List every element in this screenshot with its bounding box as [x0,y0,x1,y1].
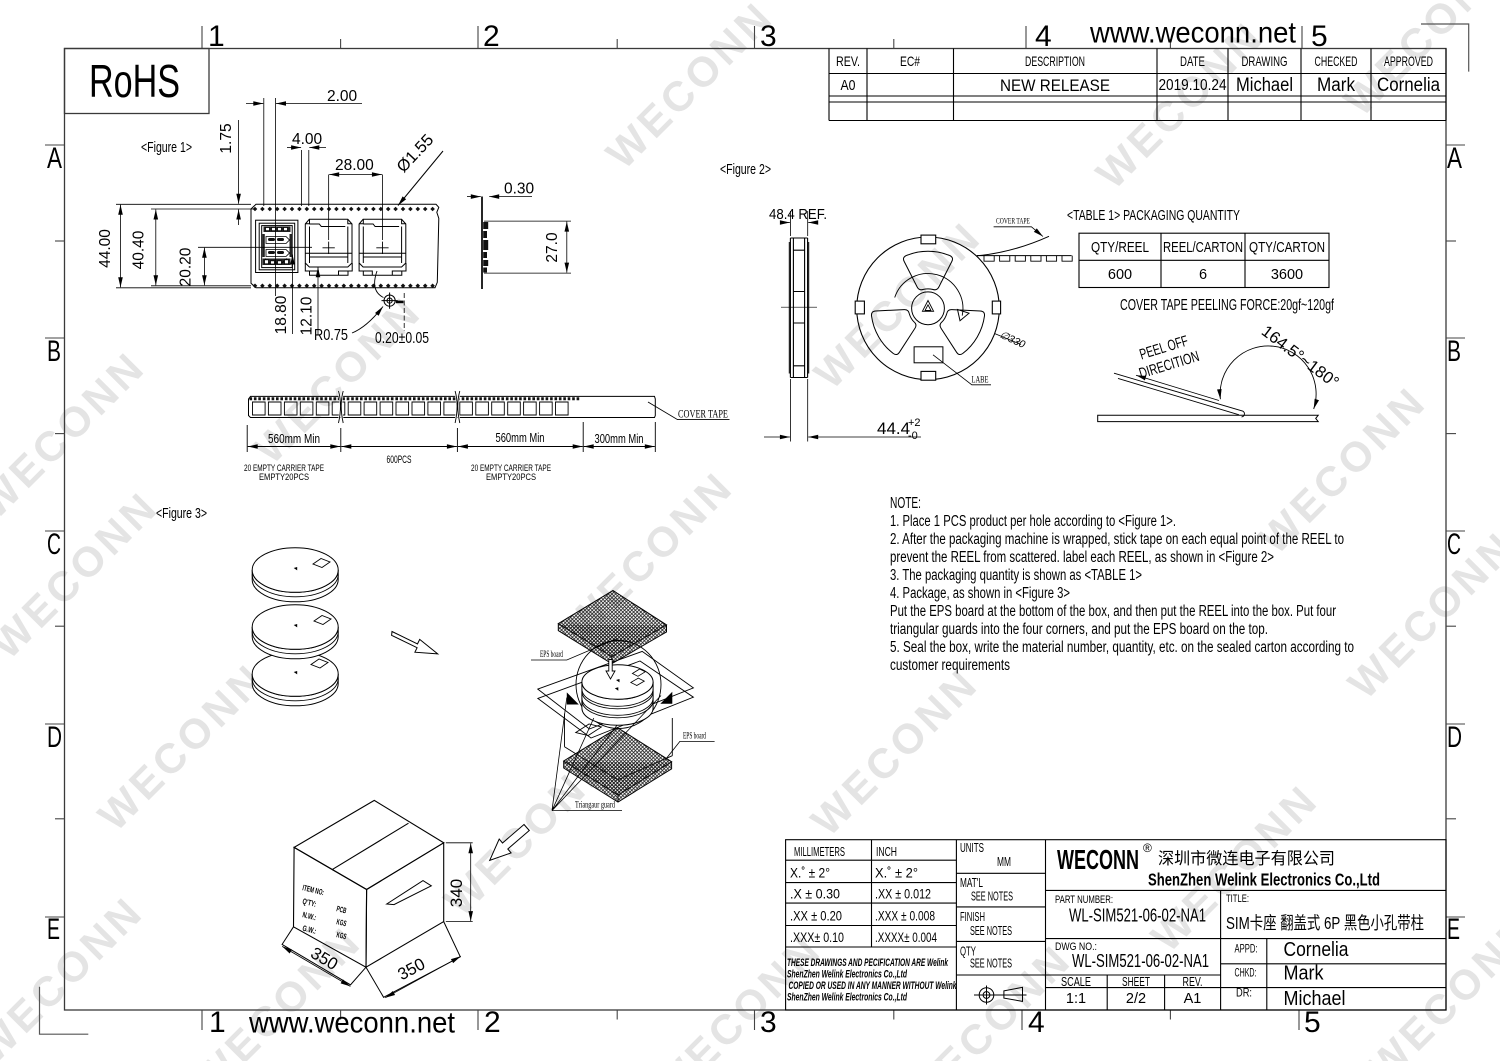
svg-text:164.5°~180°: 164.5°~180° [1258,322,1342,392]
svg-text:NOTE:: NOTE: [890,495,921,512]
svg-text:www.weconn.net: www.weconn.net [248,1007,455,1040]
svg-text:EMPTY20PCS: EMPTY20PCS [259,472,309,483]
svg-text:APPD:: APPD: [1235,944,1258,956]
svg-text:C: C [1447,528,1461,561]
svg-text:350: 350 [395,954,429,984]
svg-text:.XX ± 0.20: .XX ± 0.20 [790,908,842,924]
svg-text:Cornelia: Cornelia [1284,938,1349,961]
svg-text:1.75: 1.75 [218,123,235,153]
svg-text:5. Seal the box, write the mat: 5. Seal the box, write the material numb… [890,639,1354,656]
svg-text:EC#: EC# [900,53,920,69]
svg-text:44.4: 44.4 [877,419,910,438]
svg-text:<TABLE 1> PACKAGING QUANTITY: <TABLE 1> PACKAGING QUANTITY [1067,208,1240,224]
svg-text:COVER TAPE: COVER TAPE [996,216,1030,226]
svg-text:Triangaur guard: Triangaur guard [575,800,615,810]
svg-text:E: E [1447,913,1460,946]
svg-text:prevent the REEL from scattere: prevent the REEL from scattered. label e… [890,549,1274,566]
svg-text:WECONN: WECONN [1339,522,1500,707]
svg-text:Mark: Mark [1317,75,1355,96]
svg-text:2019.10.24: 2019.10.24 [1159,77,1227,94]
svg-text:MILLIMETERS: MILLIMETERS [794,845,845,859]
svg-text:560mm Min: 560mm Min [268,432,320,446]
svg-text:WECONN: WECONN [1057,844,1139,875]
svg-text:ShenZhen Welink Electronics Co: ShenZhen Welink Electronics Co.,Ltd [787,992,907,1004]
svg-text:DRAWING: DRAWING [1242,53,1288,69]
svg-text:THESE DRAWINGS AND PECIFICATIO: THESE DRAWINGS AND PECIFICATION ARE Weli… [787,957,949,969]
svg-text:4.00: 4.00 [292,131,323,148]
svg-text:∅330: ∅330 [998,329,1027,351]
svg-text:0.30: 0.30 [504,181,535,198]
svg-text:APPROVED: APPROVED [1384,53,1433,69]
svg-text:<Figure 2>: <Figure 2> [720,162,771,178]
svg-text:customer requirements: customer requirements [890,657,1010,674]
svg-text:MAT'L: MAT'L [960,876,983,890]
svg-text:X.˚ ± 2°: X.˚ ± 2° [790,865,830,881]
svg-text:A1: A1 [1184,991,1202,1007]
svg-text:Mark: Mark [1284,962,1325,985]
svg-text:20.20: 20.20 [178,247,195,286]
svg-text:INCH: INCH [876,845,897,859]
svg-text:<Figure 1>: <Figure 1> [141,140,192,156]
svg-text:UNITS: UNITS [960,841,984,855]
svg-text:ITEM NO:: ITEM NO: [302,883,326,897]
svg-text:RoHS: RoHS [89,55,180,107]
svg-text:DATE: DATE [1180,53,1205,69]
svg-text:CHECKED: CHECKED [1315,53,1358,69]
svg-text:A: A [47,142,62,175]
svg-text:12.10: 12.10 [299,296,316,335]
svg-text:6: 6 [1199,267,1207,283]
svg-text:B: B [47,335,61,368]
svg-text:R0.75: R0.75 [314,327,348,344]
svg-text:REV.: REV. [836,53,860,69]
svg-text:1:1: 1:1 [1066,991,1086,1007]
svg-text:LABE: LABE [972,376,989,386]
svg-text:QTY/CARTON: QTY/CARTON [1249,240,1325,256]
svg-text:B: B [1447,335,1461,368]
svg-text:SEE NOTES: SEE NOTES [970,957,1012,971]
svg-text:2.00: 2.00 [327,88,358,105]
svg-text:40.40: 40.40 [131,230,148,269]
svg-text:3600: 3600 [1271,267,1303,283]
svg-text:D: D [47,721,62,754]
svg-text:4: 4 [1035,20,1052,53]
svg-text:.XX ± 0.012: .XX ± 0.012 [875,886,931,902]
svg-text:Michael: Michael [1236,75,1293,96]
svg-text:A0: A0 [841,77,856,94]
svg-text:Cornelia: Cornelia [1377,75,1440,96]
svg-text:DR:: DR: [1236,988,1252,1000]
svg-text:NEW RELEASE: NEW RELEASE [1000,76,1110,95]
svg-text:Q'TY:: Q'TY: [302,897,318,909]
svg-text:ShenZhen Welink Electronics Co: ShenZhen Welink Electronics Co.,Ltd [1148,870,1380,890]
svg-text:WECONN: WECONN [89,654,274,839]
svg-text:2. After the packaging machine: 2. After the packaging machine is wrappe… [890,531,1344,548]
svg-text:44.00: 44.00 [97,229,114,268]
svg-text:48.4 REF.: 48.4 REF. [769,206,827,223]
svg-text:E: E [47,913,60,946]
svg-text:600: 600 [1108,267,1132,283]
svg-text:SHEET: SHEET [1122,975,1150,989]
svg-text:WL-SIM521-06-02-NA1: WL-SIM521-06-02-NA1 [1072,950,1209,971]
svg-text:-0: -0 [908,430,918,442]
svg-text:WECONN: WECONN [0,482,167,667]
svg-text:Put the EPS board at the botto: Put the EPS board at the bottom of the b… [890,603,1336,620]
svg-text:SIM卡座 翻盖式 6P 黑色小孔带柱: SIM卡座 翻盖式 6P 黑色小孔带柱 [1226,913,1424,933]
svg-text:深圳市微连电子有限公司: 深圳市微连电子有限公司 [1158,849,1335,868]
svg-text:Michael: Michael [1284,987,1346,1010]
svg-text:340: 340 [447,879,466,907]
svg-text:28.00: 28.00 [335,157,374,174]
svg-text:FINISH: FINISH [960,910,985,924]
svg-text:WL-SIM521-06-02-NA1: WL-SIM521-06-02-NA1 [1069,905,1206,926]
svg-text:1: 1 [208,20,225,53]
svg-text:300mm Min: 300mm Min [595,432,644,446]
svg-text:CHKD:: CHKD: [1235,968,1257,980]
svg-text:COVER TAPE PEELING FORCE:20gf~: COVER TAPE PEELING FORCE:20gf~120gf [1120,297,1334,314]
svg-text:REV.: REV. [1183,975,1203,989]
svg-text:2: 2 [483,20,500,53]
svg-text:.XXX ± 0.008: .XXX ± 0.008 [875,908,935,924]
svg-text:COPIED OR USED IN ANY MANNER W: COPIED OR USED IN ANY MANNER WITHOUT Wel… [789,980,958,992]
svg-text:G.W.:: G.W.: [302,924,318,936]
svg-text:0.20±0.05: 0.20±0.05 [375,330,429,347]
svg-text:X.˚ ± 2°: X.˚ ± 2° [875,865,918,881]
svg-text:COVER TAPE: COVER TAPE [678,409,728,421]
svg-text:4. Package, as shown in <Figur: 4. Package, as shown in <Figure 3> [890,585,1070,602]
svg-text:D: D [1447,721,1462,754]
svg-text:A: A [1447,142,1462,175]
svg-text:SEE NOTES: SEE NOTES [970,924,1012,938]
svg-text:SCALE: SCALE [1061,975,1091,989]
svg-text:.X ± 0.30: .X ± 0.30 [790,886,840,902]
svg-text:.XXX± 0.10: .XXX± 0.10 [790,929,844,945]
svg-text:3: 3 [760,1006,777,1039]
svg-text:WECONN: WECONN [0,887,152,1061]
svg-text:PCB: PCB [336,904,348,915]
svg-text:27.0: 27.0 [544,232,561,263]
svg-text:5: 5 [1304,1006,1321,1039]
svg-text:1: 1 [209,1006,226,1039]
svg-text:triangular guards into the fou: triangular guards into the four corners,… [890,621,1268,638]
svg-text:SEE NOTES: SEE NOTES [971,890,1013,904]
svg-text:QTY/REEL: QTY/REEL [1091,240,1149,256]
svg-text:C: C [47,528,61,561]
svg-text:N.W.:: N.W.: [302,910,318,922]
svg-text:EPS board: EPS board [540,649,563,659]
svg-text:REEL/CARTON: REEL/CARTON [1163,240,1243,256]
svg-text:ShenZhen Welink Electronics Co: ShenZhen Welink Electronics Co.,Ltd [787,969,907,981]
svg-text:2/2: 2/2 [1126,991,1146,1007]
svg-text:EMPTY20PCS: EMPTY20PCS [486,472,536,483]
svg-text:®: ® [1143,841,1152,855]
svg-text:TITLE:: TITLE: [1226,893,1249,905]
svg-text:560mm Min: 560mm Min [496,431,545,445]
svg-text:+2: +2 [908,417,921,429]
svg-text:Ø1.55: Ø1.55 [393,131,437,176]
svg-text:18.80: 18.80 [273,295,290,334]
svg-text:5: 5 [1311,20,1328,53]
svg-text:3. The packaging quantity is s: 3. The packaging quantity is shown as <T… [890,567,1142,584]
svg-text:MM: MM [997,855,1011,869]
svg-text:3: 3 [760,20,777,53]
svg-text:www.weconn.net: www.weconn.net [1089,17,1296,50]
svg-text:600PCS: 600PCS [387,454,412,466]
svg-text:.XXXX± 0.004: .XXXX± 0.004 [875,929,937,945]
svg-text:4: 4 [1028,1006,1045,1039]
svg-text:2: 2 [484,1006,501,1039]
svg-text:EPS board: EPS board [683,731,706,741]
svg-text:1. Place 1 PCS product per hol: 1. Place 1 PCS product per hole accordin… [890,513,1176,530]
svg-text:DESCRIPTION: DESCRIPTION [1025,53,1085,69]
svg-text:WECONN: WECONN [802,659,987,844]
svg-text:<Figure 3>: <Figure 3> [156,506,207,522]
